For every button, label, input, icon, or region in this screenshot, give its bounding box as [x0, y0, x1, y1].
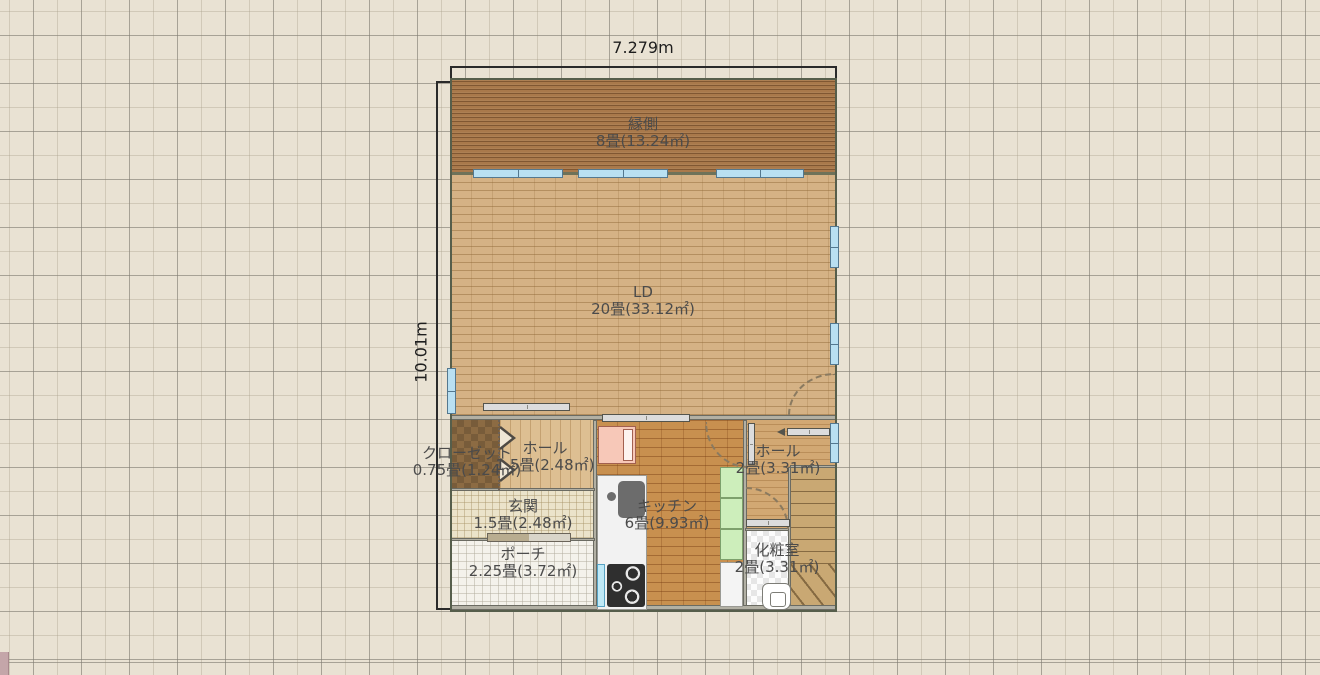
slide-direction-arrow-icon: [777, 428, 785, 436]
stove-fixture[interactable]: [607, 564, 645, 607]
width-dimension-tick-right: [835, 66, 837, 78]
height-dimension-tick-bottom: [436, 608, 450, 610]
cabinet-fixture[interactable]: [720, 467, 743, 498]
width-dimension-label: 7.279m: [612, 38, 673, 57]
window-hall-east[interactable]: [830, 423, 839, 463]
width-dimension-line: [450, 66, 837, 68]
folding-door-icon[interactable]: [497, 456, 519, 484]
window-ld-east-1[interactable]: [830, 226, 839, 268]
window-ld-west[interactable]: [447, 368, 456, 414]
window-engawa-2[interactable]: [578, 169, 668, 178]
room-ld[interactable]: [450, 174, 837, 415]
wall-closet-genkan: [450, 488, 595, 491]
window-engawa-1[interactable]: [473, 169, 563, 178]
window-ld-east-2[interactable]: [830, 323, 839, 365]
folding-door-icon[interactable]: [497, 424, 519, 452]
room-closet[interactable]: [450, 420, 500, 490]
room-genkan[interactable]: [450, 490, 595, 538]
stairs[interactable]: [790, 467, 837, 564]
cabinet-fixture[interactable]: [720, 498, 743, 529]
door-kitchen-hall[interactable]: [748, 423, 755, 465]
sliding-door-ld-kitchen[interactable]: [602, 414, 690, 422]
height-dimension-label: 10.01m: [412, 321, 431, 382]
floorplan-canvas[interactable]: 7.279m 10.01m: [0, 0, 1320, 675]
height-dimension-line: [436, 81, 438, 610]
dish-towel-icon: [597, 564, 605, 607]
toilet-fixture[interactable]: [762, 583, 791, 610]
sliding-door-powder-room[interactable]: [746, 519, 790, 527]
room-engawa[interactable]: [450, 78, 837, 174]
cabinet-white-fixture[interactable]: [720, 562, 743, 607]
wall-stairs-north: [790, 465, 837, 468]
kitchen-sink-fixture[interactable]: [618, 481, 645, 518]
sliding-door-hall-top[interactable]: [787, 428, 830, 436]
entrance-door[interactable]: [487, 533, 571, 542]
refrigerator-fixture[interactable]: [598, 426, 636, 464]
window-engawa-3[interactable]: [716, 169, 804, 178]
height-dimension-tick-top: [436, 81, 450, 83]
cabinet-fixture[interactable]: [720, 529, 743, 560]
room-porch[interactable]: [450, 540, 595, 610]
faucet-icon: [607, 492, 616, 501]
width-dimension-tick-left: [450, 66, 452, 78]
counter-ld-lowboard[interactable]: [483, 403, 570, 411]
floorplan: 縁側8畳(13.24㎡) LD20畳(33.12㎡) クローゼット0.75畳(1…: [450, 78, 837, 612]
stairs-lower-cut[interactable]: [790, 564, 837, 610]
canvas-edge-strip: [0, 652, 9, 675]
